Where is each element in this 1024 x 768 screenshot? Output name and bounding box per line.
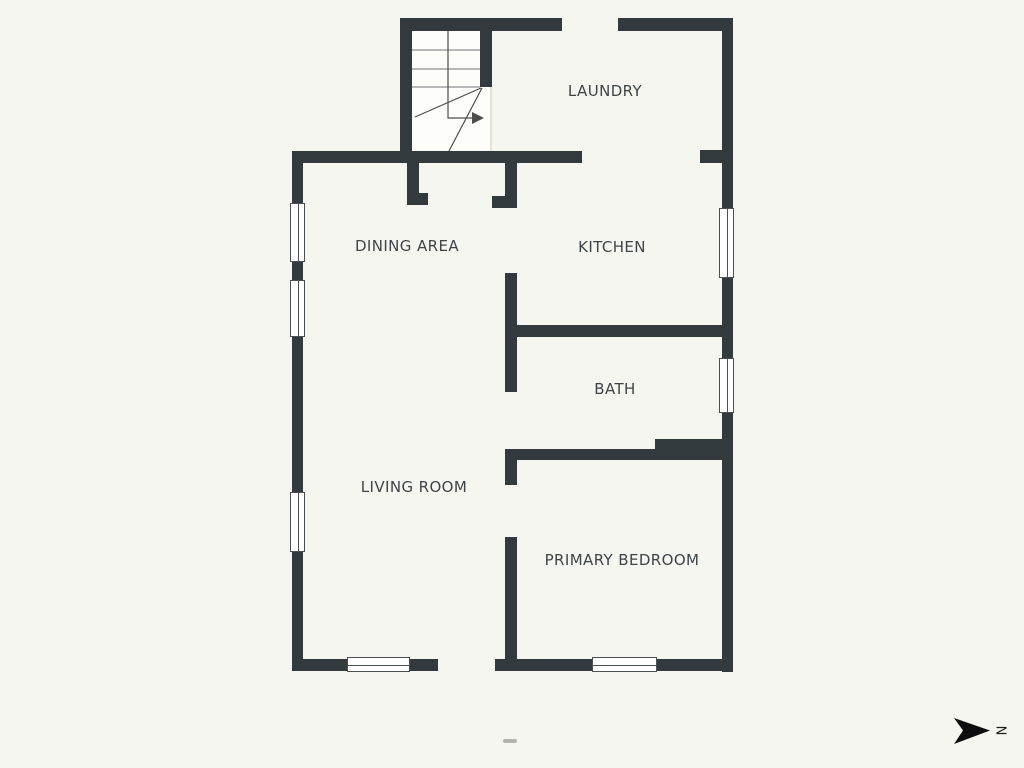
wall-interior-bedroom-upper bbox=[505, 449, 517, 485]
room-label-living-room: LIVING ROOM bbox=[361, 478, 467, 496]
room-label-bath: BATH bbox=[594, 380, 635, 398]
wall-stairwell-right bbox=[480, 18, 492, 87]
north-label: N bbox=[992, 726, 1007, 736]
wall-kitchen-bath-divider bbox=[505, 325, 733, 337]
floor-plan: LAUNDRY KITCHEN DINING AREA BATH LIVING … bbox=[0, 0, 1024, 768]
watermark-mark bbox=[503, 739, 517, 743]
window-dining-west-upper bbox=[290, 203, 305, 262]
window-bedroom-south bbox=[592, 657, 657, 672]
door-jamb-left-foot bbox=[407, 193, 428, 205]
wall-top-east bbox=[618, 18, 733, 31]
room-label-laundry: LAUNDRY bbox=[568, 82, 642, 100]
room-label-kitchen: KITCHEN bbox=[578, 238, 646, 256]
wall-interior-bedroom-lower bbox=[505, 537, 517, 659]
wall-interior-kitchen-bath bbox=[505, 273, 517, 392]
window-living-south bbox=[347, 657, 410, 672]
window-living-west bbox=[290, 492, 305, 552]
room-label-dining-area: DINING AREA bbox=[355, 237, 459, 255]
window-dining-west-lower bbox=[290, 280, 305, 337]
room-label-primary-bedroom: PRIMARY BEDROOM bbox=[545, 551, 700, 569]
compass: N bbox=[954, 715, 1014, 749]
window-kitchen-east bbox=[719, 208, 734, 278]
wall-dining-kitchen-top bbox=[292, 151, 582, 163]
wall-right-exterior bbox=[722, 18, 733, 672]
wall-interior-kitchen-upper bbox=[505, 163, 517, 208]
wall-bedroom-top-jog bbox=[655, 439, 723, 451]
window-bath-east bbox=[719, 358, 734, 413]
north-arrow-icon bbox=[954, 717, 992, 745]
door-jamb-right-foot bbox=[492, 196, 505, 208]
wall-stairwell-left bbox=[400, 18, 412, 163]
